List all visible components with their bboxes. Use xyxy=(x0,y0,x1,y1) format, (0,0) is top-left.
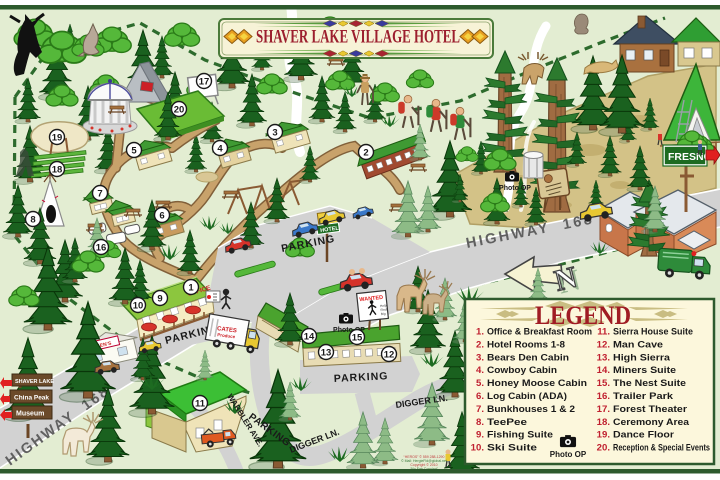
svg-text:1: 1 xyxy=(188,282,194,293)
svg-text:14: 14 xyxy=(304,331,315,342)
svg-text:Honey Moose Cabin: Honey Moose Cabin xyxy=(487,378,587,389)
svg-text:Sierra House Suite: Sierra House Suite xyxy=(613,327,693,338)
svg-text:8.: 8. xyxy=(476,417,484,428)
svg-text:12: 12 xyxy=(384,349,395,360)
svg-text:The Nest Suite: The Nest Suite xyxy=(613,378,686,389)
svg-text:11.: 11. xyxy=(597,327,610,338)
svg-text:Ceremony Area: Ceremony Area xyxy=(613,417,690,428)
svg-text:Miners Suite: Miners Suite xyxy=(613,365,676,376)
svg-text:Forest Theater: Forest Theater xyxy=(613,404,687,415)
svg-text:20.: 20. xyxy=(597,443,610,454)
svg-text:15: 15 xyxy=(352,332,363,343)
svg-text:17.: 17. xyxy=(597,404,610,415)
svg-text:9: 9 xyxy=(157,293,162,304)
svg-text:Fishing Suite: Fishing Suite xyxy=(487,430,553,441)
svg-text:Photo OP: Photo OP xyxy=(550,450,587,459)
svg-text:Office & Breakfast Room: Office & Breakfast Room xyxy=(487,327,592,338)
svg-text:2: 2 xyxy=(363,147,368,158)
svg-text:FRESNO: FRESNO xyxy=(668,151,712,163)
svg-text:8: 8 xyxy=(30,214,35,225)
svg-text:4: 4 xyxy=(217,143,223,154)
svg-text:19: 19 xyxy=(52,132,63,143)
svg-text:Ski Suite: Ski Suite xyxy=(487,443,537,454)
svg-text:Man Cave: Man Cave xyxy=(613,339,663,350)
svg-text:7.: 7. xyxy=(476,404,484,415)
svg-text:16: 16 xyxy=(96,242,107,253)
svg-text:13.: 13. xyxy=(597,352,610,363)
svg-text:4.: 4. xyxy=(476,365,484,376)
svg-text:Cowboy Cabin: Cowboy Cabin xyxy=(487,365,557,376)
svg-text:SHAVER LAKE: SHAVER LAKE xyxy=(15,379,54,385)
svg-text:Hotel Rooms 1-8: Hotel Rooms 1-8 xyxy=(487,339,566,350)
svg-text:6: 6 xyxy=(159,210,164,221)
svg-text:14.: 14. xyxy=(597,365,610,376)
svg-text:5: 5 xyxy=(131,145,137,156)
svg-text:11: 11 xyxy=(195,398,206,409)
svg-text:10: 10 xyxy=(133,300,144,311)
svg-text:Log Cabin (ADA): Log Cabin (ADA) xyxy=(487,391,567,402)
svg-text:China Peak: China Peak xyxy=(14,395,49,402)
svg-text:18.: 18. xyxy=(597,417,610,428)
svg-text:9.: 9. xyxy=(476,430,484,441)
svg-text:Big: Big xyxy=(381,312,386,316)
svg-text:3: 3 xyxy=(272,127,277,138)
svg-text:2.: 2. xyxy=(476,339,484,350)
svg-text:16.: 16. xyxy=(597,391,610,402)
svg-text:15.: 15. xyxy=(597,378,610,389)
svg-text:19.: 19. xyxy=(597,430,610,441)
svg-text:Museum: Museum xyxy=(16,411,44,418)
svg-text:3.: 3. xyxy=(476,352,484,363)
svg-text:10.: 10. xyxy=(471,443,484,454)
svg-text:Bears Den Cabin: Bears Den Cabin xyxy=(487,352,569,363)
svg-text:5.: 5. xyxy=(476,378,484,389)
svg-text:Photo OP: Photo OP xyxy=(499,185,531,192)
svg-text:TeePee: TeePee xyxy=(487,417,527,428)
svg-text:12.: 12. xyxy=(597,339,610,350)
svg-text:Bunkhouses 1 & 2: Bunkhouses 1 & 2 xyxy=(487,404,575,415)
svg-text:Dance Floor: Dance Floor xyxy=(613,430,674,441)
svg-text:Trailer Park: Trailer Park xyxy=(613,391,674,402)
svg-text:18: 18 xyxy=(52,164,63,175)
svg-text:1.: 1. xyxy=(476,327,484,338)
svg-text:6.: 6. xyxy=(476,391,484,402)
svg-text:7: 7 xyxy=(97,188,102,199)
svg-text:SHAVER LAKE VILLAGE HOTEL: SHAVER LAKE VILLAGE HOTEL xyxy=(256,27,460,48)
svg-text:20: 20 xyxy=(174,104,185,115)
svg-text:13: 13 xyxy=(321,347,332,358)
svg-text:High Sierra: High Sierra xyxy=(613,352,671,363)
svg-text:17: 17 xyxy=(199,76,210,87)
svg-text:Reception & Special Events: Reception & Special Events xyxy=(613,443,710,454)
